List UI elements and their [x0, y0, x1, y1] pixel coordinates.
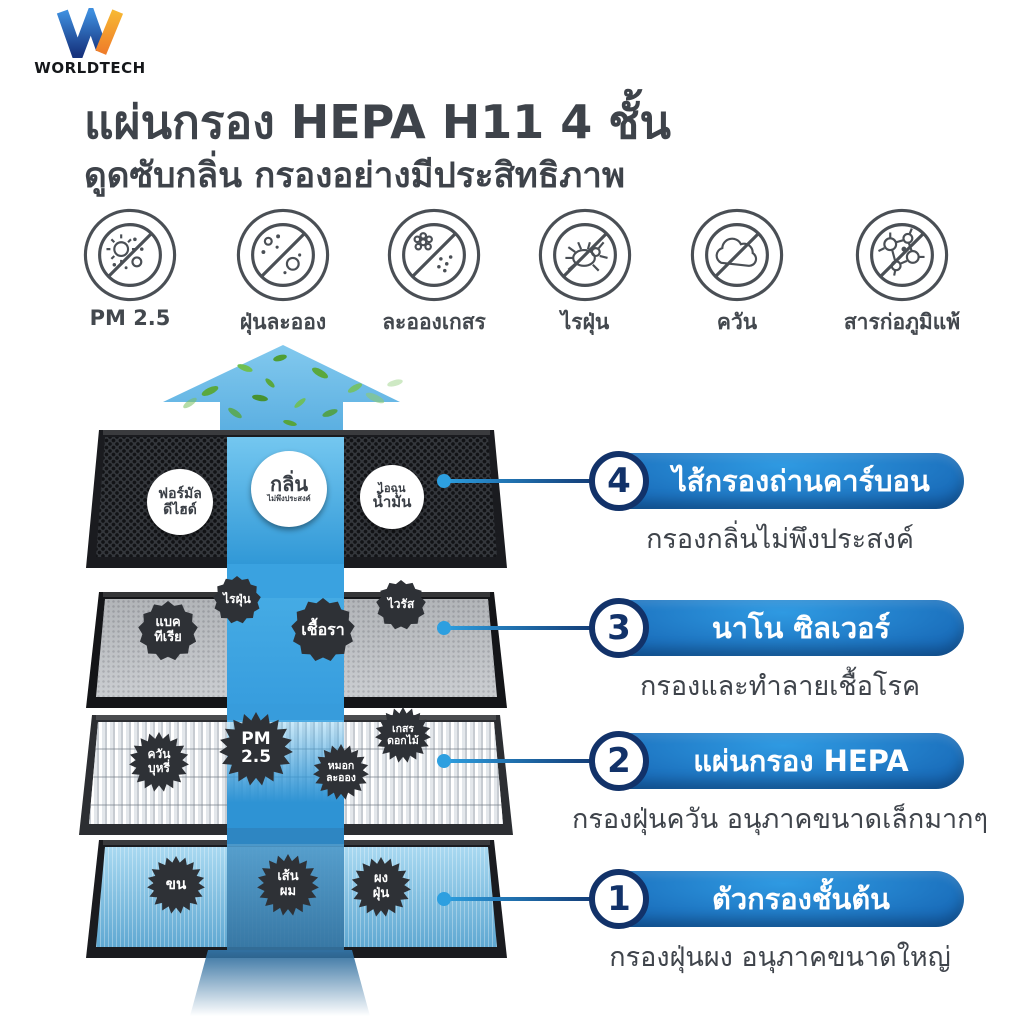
layer-1-number-badge: 1 — [589, 869, 649, 929]
bubble-formaldehyde: ฟอร์มัลดีไฮด์ — [147, 469, 213, 535]
smoke-icon — [688, 206, 786, 304]
connector-line — [443, 479, 606, 483]
connector-line — [443, 897, 606, 901]
layer-3-name-pill: นาโน ซิลเวอร์ — [602, 600, 964, 656]
dust-mite-icon — [536, 206, 634, 304]
layer-2-number-badge: 2 — [589, 731, 649, 791]
bubble-oil-fume: ไอฉุนน้ำมัน — [360, 465, 424, 529]
blocked-particle-pm25: PM 2.5 — [55, 206, 205, 330]
icon-label: ฝุ่นละออง — [240, 306, 326, 339]
infographic-canvas: WORLDTECH แผ่นกรอง HEPA H11 4 ชั้น ดูดซั… — [0, 0, 1024, 1024]
layer-2-description: กรองฝุ่นควัน อนุภาคขนาดเล็กมากๆ — [560, 797, 1000, 840]
air-stream-inlet — [190, 950, 370, 1016]
connector-dot-icon — [437, 892, 451, 906]
pollen-icon — [385, 206, 483, 304]
icon-label: PM 2.5 — [90, 306, 171, 330]
layer-4-number-badge: 4 — [589, 451, 649, 511]
pm25-icon — [81, 206, 179, 304]
blocked-particle-pollen: ละอองเกสร — [359, 206, 509, 339]
brand-logo: WORLDTECH — [34, 8, 146, 77]
layer-3-description: กรองและทำลายเชื้อโรค — [560, 664, 1000, 707]
worldtech-w-icon — [47, 8, 133, 58]
icon-label: ละอองเกสร — [382, 306, 486, 339]
layer-3-number-badge: 3 — [589, 598, 649, 658]
connector-dot-icon — [437, 754, 451, 768]
connector-line — [443, 626, 606, 630]
allergen-icon — [853, 206, 951, 304]
blocked-particle-dust: ฝุ่นละออง — [208, 206, 358, 339]
bubble-odor: กลิ่นไม่พึงประสงค์ — [251, 451, 327, 527]
layer-4-description: กรองกลิ่นไม่พึงประสงค์ — [560, 517, 1000, 560]
layer-2-name-pill: แผ่นกรอง HEPA — [602, 733, 964, 789]
connector-dot-icon — [437, 621, 451, 635]
brand-name: WORLDTECH — [34, 59, 146, 77]
connector-line — [443, 759, 606, 763]
blocked-particle-dust-mite: ไรฝุ่น — [510, 206, 660, 339]
page-subtitle: ดูดซับกลิ่น กรองอย่างมีประสิทธิภาพ — [84, 148, 625, 203]
clean-air-arrow — [150, 343, 410, 438]
connector-dot-icon — [437, 474, 451, 488]
icon-label: สารก่อภูมิแพ้ — [844, 306, 960, 339]
icon-label: ไรฝุ่น — [561, 306, 610, 339]
blocked-particle-allergen: สารก่อภูมิแพ้ — [820, 206, 984, 339]
icon-label: ควัน — [717, 306, 757, 339]
blocked-particle-smoke: ควัน — [662, 206, 812, 339]
layer-4-name-pill: ไส้กรองถ่านคาร์บอน — [602, 453, 964, 509]
layer-1-description: กรองฝุ่นผง อนุภาคขนาดใหญ่ — [560, 935, 1000, 978]
layer-1-name-pill: ตัวกรองชั้นต้น — [602, 871, 964, 927]
dust-icon — [234, 206, 332, 304]
